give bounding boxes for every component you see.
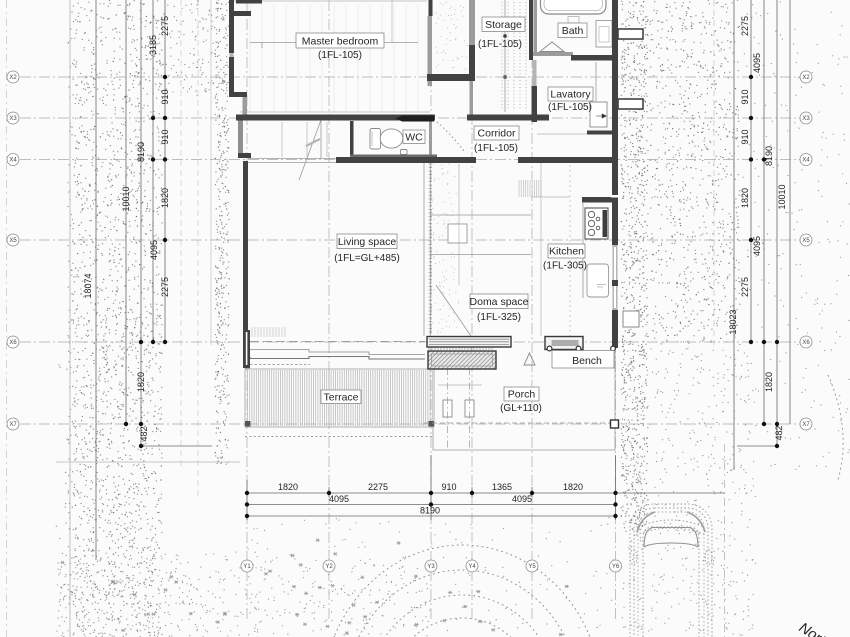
- svg-text:Porch: Porch: [508, 389, 536, 401]
- svg-text:910: 910: [160, 129, 170, 144]
- svg-text:910: 910: [160, 89, 170, 104]
- svg-text:Living space: Living space: [338, 236, 397, 248]
- svg-text:X5: X5: [802, 238, 810, 244]
- svg-text:X7: X7: [802, 422, 810, 428]
- svg-text:X6: X6: [802, 340, 810, 346]
- svg-text:(1FL-105): (1FL-105): [474, 143, 518, 154]
- svg-text:8190: 8190: [420, 506, 440, 516]
- svg-text:4095: 4095: [329, 494, 349, 504]
- svg-text:X2: X2: [802, 75, 810, 81]
- svg-text:X4: X4: [9, 158, 17, 164]
- svg-text:4095: 4095: [149, 240, 159, 260]
- svg-text:X3: X3: [802, 116, 810, 122]
- svg-text:8190: 8190: [764, 146, 774, 166]
- svg-text:2275: 2275: [740, 16, 750, 36]
- svg-text:482: 482: [139, 426, 149, 441]
- svg-text:1365: 1365: [492, 482, 512, 492]
- svg-text:Terrace: Terrace: [323, 392, 358, 404]
- svg-text:Y3: Y3: [427, 564, 435, 570]
- svg-text:X6: X6: [9, 340, 17, 346]
- svg-text:Storage: Storage: [485, 19, 522, 31]
- svg-text:(1FL-105): (1FL-105): [548, 102, 592, 113]
- svg-text:3185: 3185: [148, 35, 158, 55]
- svg-text:WC: WC: [405, 132, 423, 144]
- svg-text:482: 482: [774, 425, 784, 440]
- svg-text:1820: 1820: [764, 372, 774, 392]
- svg-text:Master bedroom: Master bedroom: [302, 36, 379, 48]
- svg-text:Doma space: Doma space: [470, 296, 529, 308]
- svg-text:1820: 1820: [563, 482, 583, 492]
- svg-text:910: 910: [740, 129, 750, 144]
- svg-text:10010: 10010: [121, 186, 131, 211]
- svg-text:X5: X5: [9, 238, 17, 244]
- svg-text:18074: 18074: [83, 273, 93, 298]
- svg-text:2275: 2275: [160, 277, 170, 297]
- svg-text:Bench: Bench: [572, 355, 602, 367]
- svg-text:X3: X3: [9, 116, 17, 122]
- svg-text:Y6: Y6: [612, 564, 620, 570]
- svg-text:910: 910: [441, 482, 456, 492]
- svg-text:X4: X4: [802, 158, 810, 164]
- svg-text:2275: 2275: [160, 16, 170, 36]
- svg-text:(1FL-305): (1FL-305): [543, 261, 587, 272]
- svg-text:Bath: Bath: [562, 25, 584, 37]
- svg-text:Kitchen: Kitchen: [549, 246, 584, 258]
- svg-text:1820: 1820: [160, 188, 170, 208]
- svg-text:(1FL-105): (1FL-105): [478, 39, 522, 50]
- svg-text:1820: 1820: [740, 188, 750, 208]
- svg-text:Y4: Y4: [468, 564, 476, 570]
- svg-text:Corridor: Corridor: [478, 128, 516, 140]
- svg-text:1820: 1820: [278, 482, 298, 492]
- svg-text:Lavatory: Lavatory: [550, 89, 591, 101]
- svg-text:X7: X7: [9, 422, 17, 428]
- svg-text:4095: 4095: [512, 494, 532, 504]
- svg-text:2275: 2275: [368, 482, 388, 492]
- svg-text:Y5: Y5: [528, 564, 536, 570]
- svg-text:910: 910: [740, 89, 750, 104]
- svg-text:(GL+110): (GL+110): [500, 403, 542, 414]
- svg-text:4095: 4095: [752, 236, 762, 256]
- svg-text:1820: 1820: [136, 372, 146, 392]
- svg-text:18023: 18023: [728, 309, 738, 334]
- svg-text:(1FL-105): (1FL-105): [318, 50, 362, 61]
- svg-text:2275: 2275: [740, 277, 750, 297]
- svg-text:Y1: Y1: [243, 564, 251, 570]
- svg-text:X2: X2: [9, 75, 17, 81]
- svg-text:(1FL=GL+485): (1FL=GL+485): [334, 253, 400, 264]
- svg-text:10010: 10010: [777, 184, 787, 209]
- svg-text:8190: 8190: [136, 142, 146, 162]
- svg-text:(1FL-325): (1FL-325): [477, 312, 521, 323]
- svg-text:Y2: Y2: [325, 564, 333, 570]
- svg-text:4095: 4095: [752, 53, 762, 73]
